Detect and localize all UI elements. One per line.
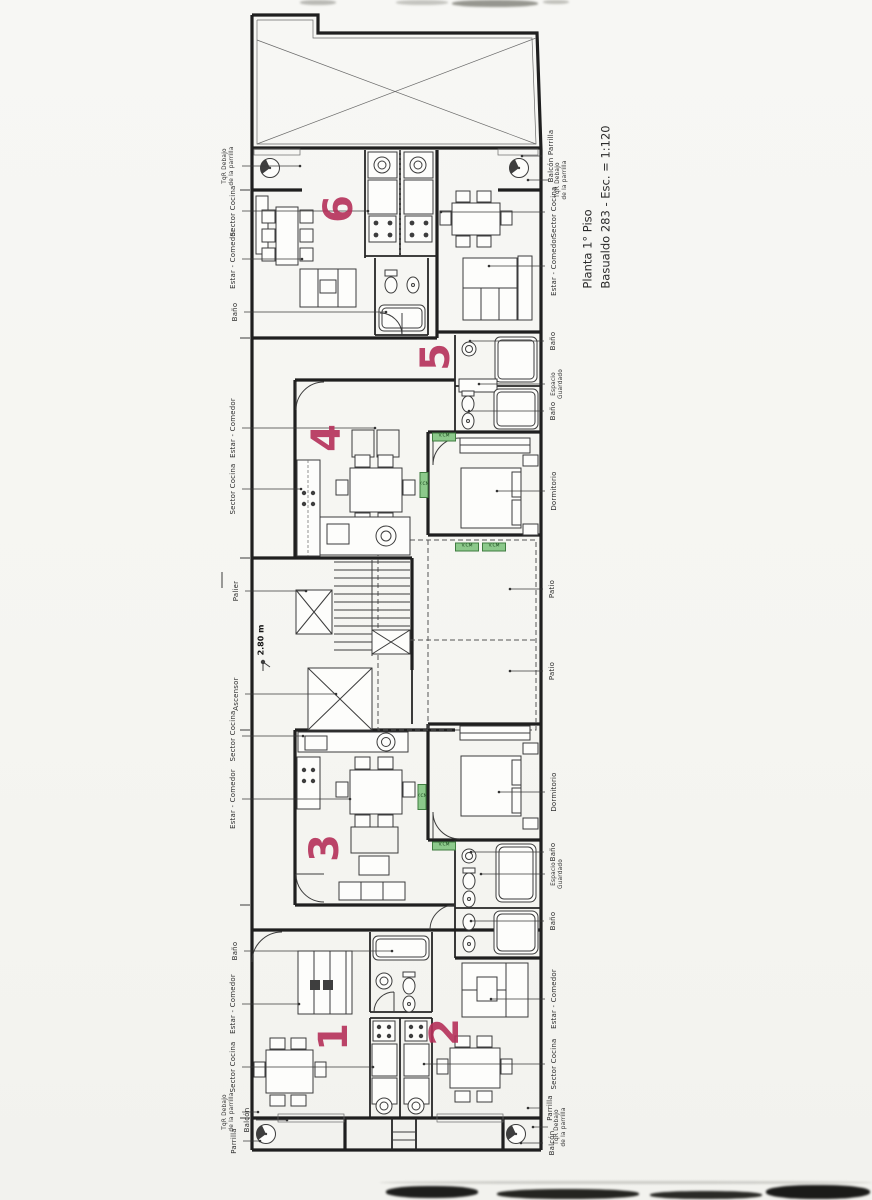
leader-dot bbox=[301, 258, 304, 261]
leader-dot bbox=[527, 179, 530, 182]
room-label: Sector Cocina bbox=[229, 710, 237, 761]
leader-dot bbox=[470, 920, 473, 923]
room-label: Estar - Comedor bbox=[229, 398, 237, 458]
leader-dot bbox=[300, 488, 303, 491]
scan-artifact bbox=[543, 0, 569, 4]
room-label: Patio bbox=[548, 662, 556, 680]
room-label: Baño bbox=[549, 402, 557, 421]
leader-dot bbox=[367, 210, 370, 213]
scan-artifact bbox=[497, 1189, 639, 1199]
room-label: TqR Debajo de la parrilla bbox=[222, 1092, 236, 1131]
leader-dot bbox=[423, 1063, 426, 1066]
window-tag: V.CM bbox=[432, 433, 456, 442]
room-label: Dormitorio bbox=[550, 772, 558, 811]
scan-artifact bbox=[380, 1181, 872, 1184]
leader-dot bbox=[478, 383, 481, 386]
room-label: Estar - Comedor bbox=[229, 974, 237, 1034]
leader-dot bbox=[532, 1126, 535, 1129]
window-tag: V.CM bbox=[482, 543, 506, 552]
room-label: Espacio Guardado bbox=[551, 369, 565, 399]
level-height-note: 2.80 m bbox=[257, 625, 266, 656]
room-label: Dormitorio bbox=[550, 471, 558, 510]
leader-dot bbox=[496, 490, 499, 493]
leader-dot bbox=[509, 588, 512, 591]
unit-number: 5 bbox=[413, 343, 459, 371]
room-label: Sector Cocina bbox=[550, 186, 558, 237]
room-label: Baño bbox=[231, 942, 239, 961]
plan-title-block: Planta 1° Piso Basualdo 283 - Esc. = 1:1… bbox=[579, 125, 616, 288]
plan-title-line1: Planta 1° Piso bbox=[579, 125, 597, 288]
leader-dot bbox=[469, 340, 472, 343]
leader-dot bbox=[305, 590, 308, 593]
leader-dot bbox=[521, 155, 524, 158]
leader-dot bbox=[527, 1107, 530, 1110]
leader-dot bbox=[374, 427, 377, 430]
leader-dot bbox=[298, 1003, 301, 1006]
room-label: Estar - Comedor bbox=[550, 236, 558, 296]
window-tag: V.CM bbox=[455, 543, 479, 552]
leader-dot bbox=[335, 693, 338, 696]
unit-number: 2 bbox=[422, 1018, 468, 1046]
room-label: Parrilla bbox=[546, 1095, 554, 1121]
room-label: Balcón bbox=[548, 1131, 556, 1156]
room-label: Baño bbox=[549, 912, 557, 931]
leader-dot bbox=[490, 998, 493, 1001]
room-label: Sector Cocina bbox=[229, 463, 237, 514]
plan-title-line2: Basualdo 283 - Esc. = 1:120 bbox=[597, 125, 615, 288]
unit-number: 1 bbox=[311, 1023, 357, 1051]
room-label: Patio bbox=[548, 580, 556, 598]
unit-number: 4 bbox=[304, 424, 350, 452]
leader-dot bbox=[372, 1066, 375, 1069]
scan-artifact bbox=[766, 1185, 870, 1199]
room-label: Balcón bbox=[243, 1108, 251, 1133]
room-label: Ascensor bbox=[232, 677, 240, 710]
leader-dot bbox=[468, 410, 471, 413]
leader-dot bbox=[498, 791, 501, 794]
leader-dot bbox=[509, 670, 512, 673]
scan-artifact bbox=[300, 0, 336, 5]
leader-dot bbox=[488, 265, 491, 268]
leader-dot bbox=[349, 798, 352, 801]
scan-artifact bbox=[396, 0, 448, 5]
leader-dot bbox=[299, 165, 302, 168]
room-label: Sector Cocina bbox=[229, 1041, 237, 1092]
room-label: Sector Cocina bbox=[550, 1038, 558, 1089]
room-label: Baño bbox=[231, 303, 239, 322]
leader-dot bbox=[257, 1111, 260, 1114]
leader-dot bbox=[286, 1119, 289, 1122]
room-label: Balcón Parrilla bbox=[547, 130, 555, 183]
floor-plan-scan: TqR Debajo de la parrillaSector CocinaEs… bbox=[0, 0, 872, 1200]
leader-dot bbox=[391, 950, 394, 953]
scan-artifact bbox=[650, 1191, 762, 1199]
scan-artifact bbox=[386, 1186, 478, 1198]
scan-artifact bbox=[452, 0, 538, 7]
room-label: Palier bbox=[232, 581, 240, 601]
leader-dot bbox=[520, 1142, 523, 1145]
room-label: Estar - Comedor bbox=[229, 229, 237, 289]
leader-dot bbox=[440, 211, 443, 214]
unit-number: 6 bbox=[316, 195, 362, 223]
room-label: Espacio Guardado bbox=[551, 859, 565, 889]
window-tag: V.CM bbox=[420, 472, 429, 498]
leader-dot bbox=[302, 735, 305, 738]
room-label: Baño bbox=[549, 332, 557, 351]
leader-dot bbox=[480, 873, 483, 876]
unit-number: 3 bbox=[302, 834, 348, 862]
leader-dot bbox=[470, 851, 473, 854]
leader-dot bbox=[259, 1140, 262, 1143]
room-label: Parrilla bbox=[230, 1128, 238, 1154]
room-label: Estar - Comedor bbox=[229, 769, 237, 829]
leader-dot bbox=[385, 311, 388, 314]
room-label: TqR Debajo de la parrilla bbox=[222, 146, 236, 185]
window-tag: V.CM bbox=[418, 784, 427, 810]
window-tag: V.CM bbox=[432, 842, 456, 851]
room-label: Estar - Comedor bbox=[550, 969, 558, 1029]
